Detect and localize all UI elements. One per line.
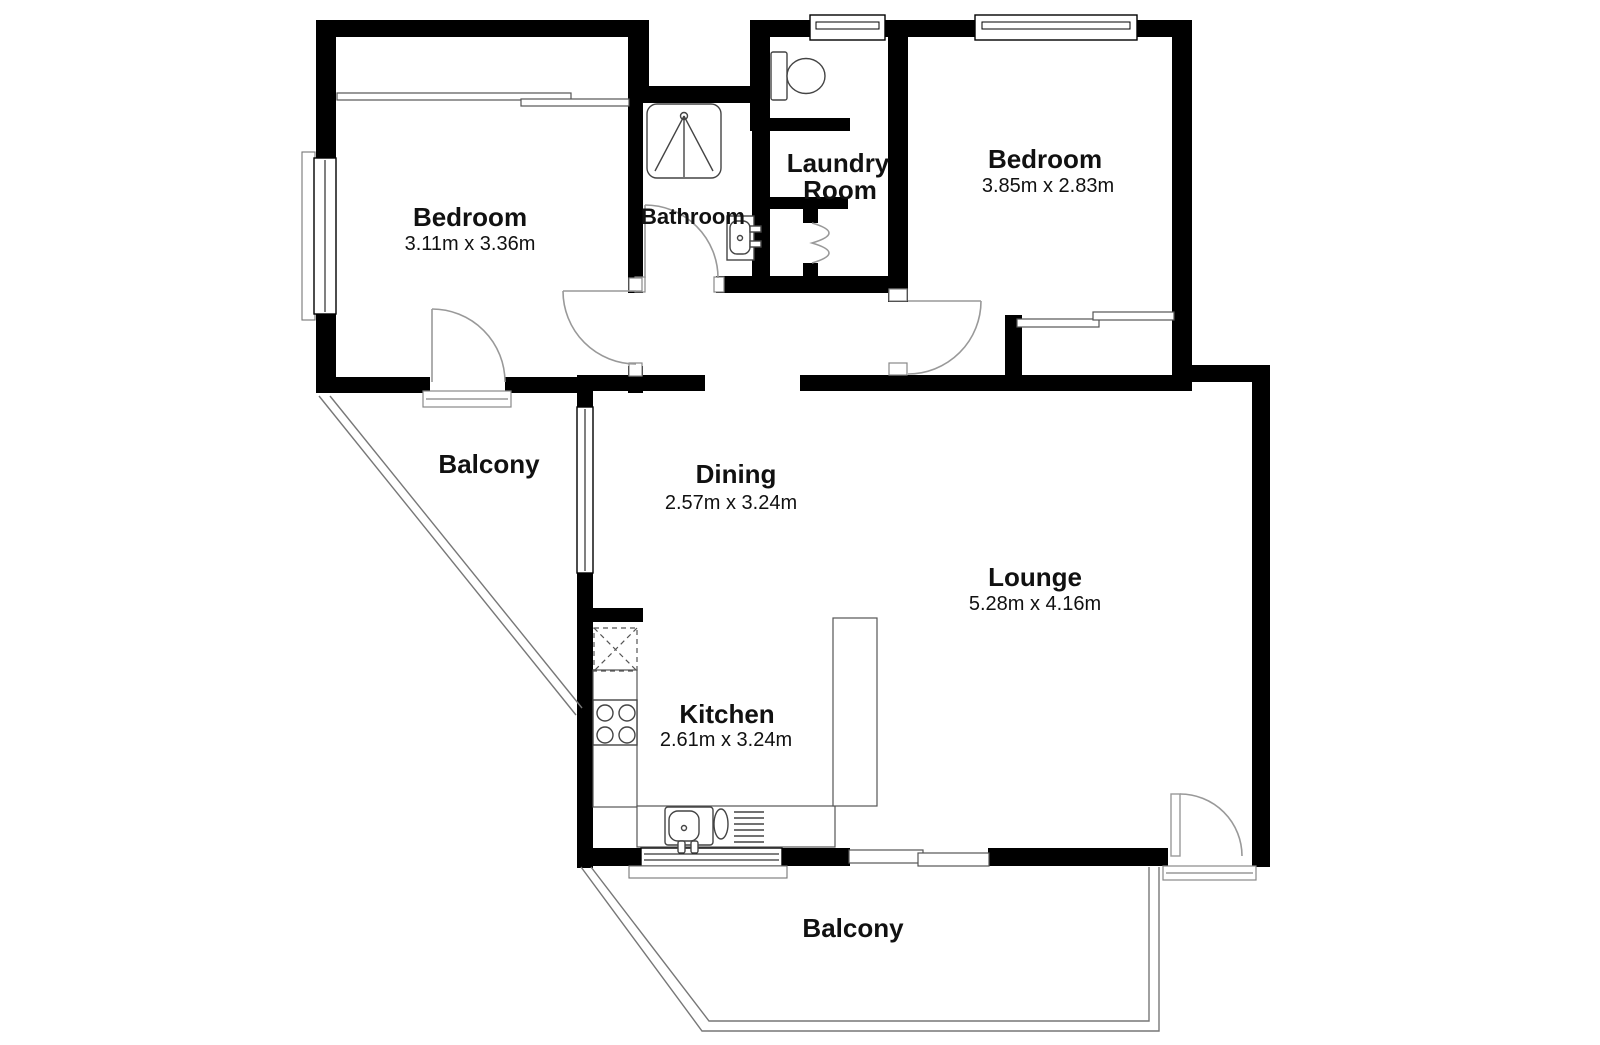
laundry-label-line1: Laundry [787, 148, 890, 178]
stove-cooktop-icon [593, 700, 637, 745]
dining-dimensions: 2.57m x 3.24m [665, 492, 797, 514]
lounge-dimensions: 5.28m x 4.16m [969, 593, 1101, 615]
bedroom2-window [975, 15, 1137, 40]
room-kitchen: Kitchen 2.61m x 3.24m [660, 699, 792, 751]
room-dining: Dining 2.57m x 3.24m [665, 459, 797, 514]
kitchen-window [641, 848, 782, 866]
floor-plan: Bedroom 3.11m x 3.36m Bedroom 3.85m x 2.… [0, 0, 1600, 1045]
window-sill [302, 152, 315, 320]
appliance-box-icon [594, 628, 637, 671]
balcony-top-label: Balcony [438, 449, 540, 479]
laundry-window [810, 15, 885, 40]
room-balcony-bottom: Balcony [802, 913, 904, 943]
bathroom-label: Bathroom [641, 204, 745, 229]
room-laundry: Laundry Room [787, 148, 890, 205]
bedroom1-door [563, 291, 636, 364]
room-bedroom-1: Bedroom 3.11m x 3.36m [405, 202, 536, 255]
room-bedroom-2: Bedroom 3.85m x 2.83m [982, 144, 1114, 197]
laundry-label-line2: Room [803, 175, 877, 205]
closet-sliding-door [1093, 312, 1174, 320]
kitchen-label: Kitchen [679, 699, 774, 729]
bedroom2-dimensions: 3.85m x 2.83m [982, 175, 1114, 197]
sliding-door-panel [849, 850, 923, 863]
window-sill [629, 866, 787, 878]
kitchen-island [833, 618, 877, 806]
closet-sliding-door [1017, 319, 1099, 327]
bedroom1-label: Bedroom [413, 202, 527, 232]
room-balcony-top: Balcony [438, 449, 540, 479]
bedroom2-door [908, 301, 981, 374]
bedroom2-label: Bedroom [988, 144, 1102, 174]
kitchen-dimensions: 2.61m x 3.24m [660, 729, 792, 751]
floor-plan-svg: Bedroom 3.11m x 3.36m Bedroom 3.85m x 2.… [0, 0, 1600, 1045]
balcony-bottom-label: Balcony [802, 913, 904, 943]
lounge-balcony-door [1171, 794, 1242, 856]
bedroom1-dimensions: 3.11m x 3.36m [405, 233, 536, 255]
shower-stall-icon [647, 104, 721, 178]
wardrobe-sliding-door [521, 99, 629, 106]
room-bathroom: Bathroom [641, 204, 745, 229]
laundry-bifold-door [812, 223, 829, 263]
sliding-door-panel [918, 853, 989, 866]
dining-label: Dining [696, 459, 777, 489]
room-lounge: Lounge 5.28m x 4.16m [969, 562, 1101, 615]
bedroom1-balcony-door [432, 309, 505, 382]
toilet-icon [771, 52, 825, 100]
lounge-label: Lounge [988, 562, 1082, 592]
